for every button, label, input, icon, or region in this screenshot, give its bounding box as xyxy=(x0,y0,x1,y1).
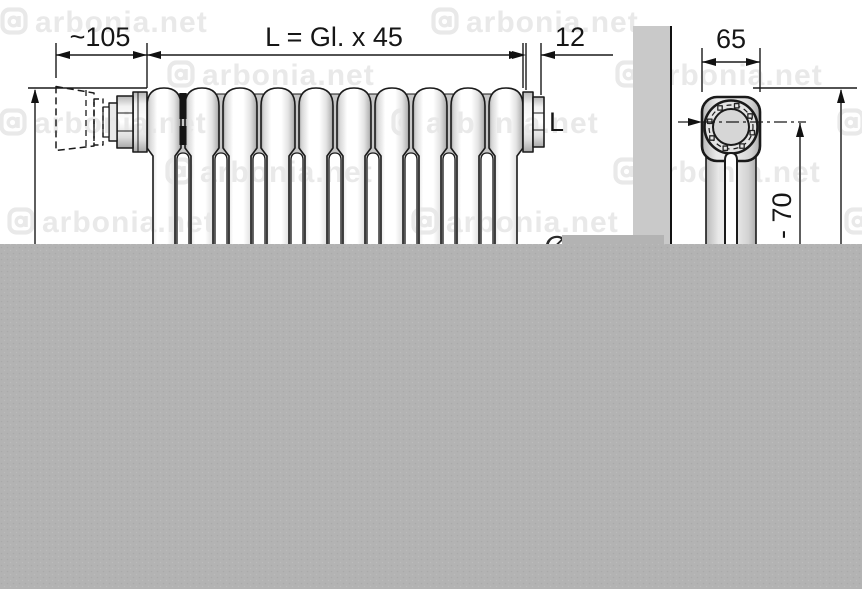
arrow-right-icon xyxy=(512,51,526,59)
watermark-text: arbonia.net xyxy=(648,156,821,189)
arbonia-logo-icon xyxy=(624,70,633,79)
watermark-text: arbonia.net xyxy=(202,59,375,92)
arbonia-logo-icon xyxy=(840,111,862,134)
watermark-text: arbonia.net xyxy=(42,206,215,239)
arrow-left-icon xyxy=(147,51,161,59)
arbonia-logo-icon xyxy=(3,10,26,33)
dim-depth-label: 65 xyxy=(716,24,746,54)
watermark: arbonia.net xyxy=(3,6,208,39)
arrow-left-icon xyxy=(541,51,555,59)
arrow-up-icon xyxy=(796,123,804,137)
arbonia-logo-icon xyxy=(16,217,25,226)
watermark-text: arbonia.net xyxy=(466,6,639,39)
watermark-text: arbonia.net xyxy=(200,156,373,189)
arrow-right-icon xyxy=(688,118,702,126)
arbonia-logo-icon xyxy=(8,118,17,127)
tube-cross-section-inner xyxy=(713,109,749,145)
flange-tab xyxy=(748,114,752,118)
dim-length-formula-label: L = Gl. x 45 xyxy=(265,22,403,52)
flange-tab xyxy=(708,119,712,123)
arrow-right-icon xyxy=(133,51,147,59)
drawing-canvas: ~105 L = Gl. x 45 12 L Ø 25 65 - 70 xyxy=(0,0,862,589)
arrow-up-icon xyxy=(31,89,39,103)
flange-tab xyxy=(718,106,722,110)
watermark: arbonia.net xyxy=(847,206,862,239)
arbonia-logo-icon xyxy=(434,10,457,33)
arbonia-logo-icon xyxy=(846,118,855,127)
watermark-text: arbonia.net xyxy=(650,59,823,92)
arbonia-logo-icon xyxy=(622,167,631,176)
arbonia-logo-icon xyxy=(170,63,193,86)
watermark-text: arbonia.net xyxy=(35,6,208,39)
radiator-technical-drawing: ~105 L = Gl. x 45 12 L Ø 25 65 - 70 xyxy=(0,0,862,589)
watermark: arbonia.net xyxy=(10,206,215,239)
bottom-overlay xyxy=(0,244,862,589)
watermark-text: arbonia.net xyxy=(34,107,207,140)
watermark: arbonia.net xyxy=(2,107,207,140)
flange-tab xyxy=(750,130,754,134)
arbonia-logo-icon xyxy=(853,217,862,226)
arbonia-logo-icon xyxy=(10,210,33,233)
back-tube-slot xyxy=(405,153,417,252)
arrow-up-icon xyxy=(837,89,845,103)
arbonia-logo-icon xyxy=(440,17,449,26)
arbonia-logo-icon xyxy=(2,111,25,134)
arbonia-logo-icon xyxy=(9,17,18,26)
arrow-left-icon xyxy=(56,51,70,59)
dim-center-height-label: - 70 xyxy=(767,192,797,239)
watermark: arbonia.net xyxy=(434,6,639,39)
flange-tab xyxy=(710,136,714,140)
watermark: arbonia.net xyxy=(840,107,862,140)
watermark: arbonia.net xyxy=(170,59,375,92)
flange-tab xyxy=(723,146,727,150)
watermark-text: arbonia.net xyxy=(426,107,599,140)
watermark-text: arbonia.net xyxy=(446,206,619,239)
flange-tab xyxy=(740,144,744,148)
flange-tab xyxy=(734,104,738,108)
arbonia-logo-icon xyxy=(176,70,185,79)
